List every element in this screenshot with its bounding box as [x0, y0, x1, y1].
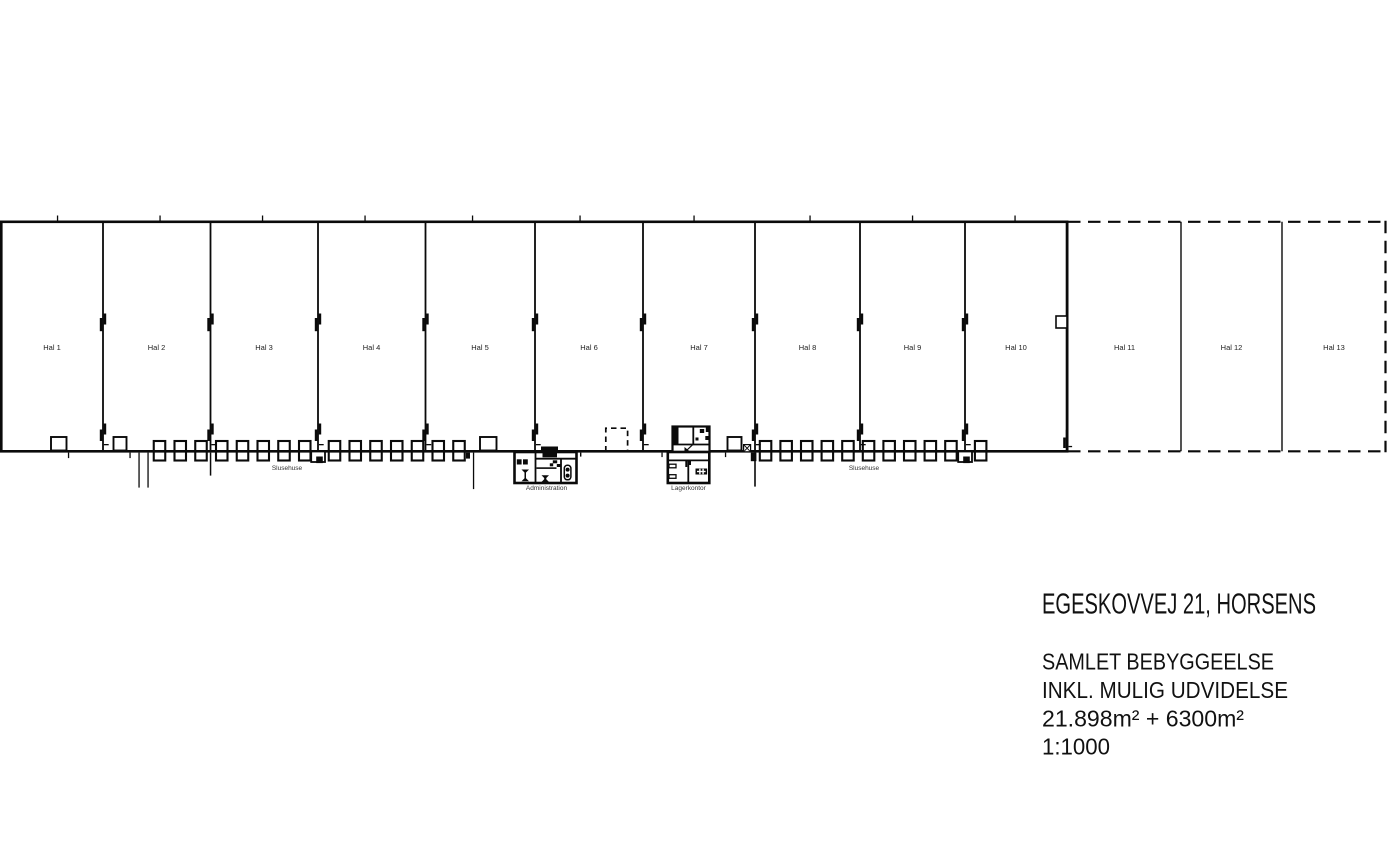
svg-text:Hal 5: Hal 5	[471, 343, 489, 352]
svg-text:Hal 11: Hal 11	[1114, 343, 1135, 352]
svg-text:Administration: Administration	[526, 485, 568, 492]
svg-text:Hal 12: Hal 12	[1221, 343, 1243, 352]
svg-text:Hal 9: Hal 9	[904, 343, 922, 352]
svg-text:INKL. MULIG UDVIDELSE: INKL. MULIG UDVIDELSE	[1042, 677, 1288, 703]
svg-text:Lagerkontor: Lagerkontor	[671, 485, 707, 492]
svg-text:EGESKOVVEJ 21, HORSENS: EGESKOVVEJ 21, HORSENS	[1042, 589, 1316, 621]
svg-text:Hal 1: Hal 1	[43, 343, 61, 352]
svg-text:Hal 2: Hal 2	[148, 343, 166, 352]
svg-text:Hal 4: Hal 4	[363, 343, 381, 352]
svg-text:21.898m² + 6300m²: 21.898m² + 6300m²	[1042, 706, 1244, 732]
svg-text:Hal 8: Hal 8	[799, 343, 817, 352]
svg-text:1:1000: 1:1000	[1042, 734, 1110, 760]
svg-text:Hal 6: Hal 6	[580, 343, 598, 352]
svg-text:Hal 3: Hal 3	[255, 343, 273, 352]
svg-text:Slusehuse: Slusehuse	[272, 465, 303, 472]
svg-text:Slusehuse: Slusehuse	[849, 465, 880, 472]
svg-text:Hal 7: Hal 7	[690, 343, 708, 352]
svg-text:Hal 10: Hal 10	[1005, 343, 1027, 352]
svg-text:Hal 13: Hal 13	[1323, 343, 1345, 352]
svg-text:SAMLET BEBYGGEELSE: SAMLET BEBYGGEELSE	[1042, 649, 1274, 675]
